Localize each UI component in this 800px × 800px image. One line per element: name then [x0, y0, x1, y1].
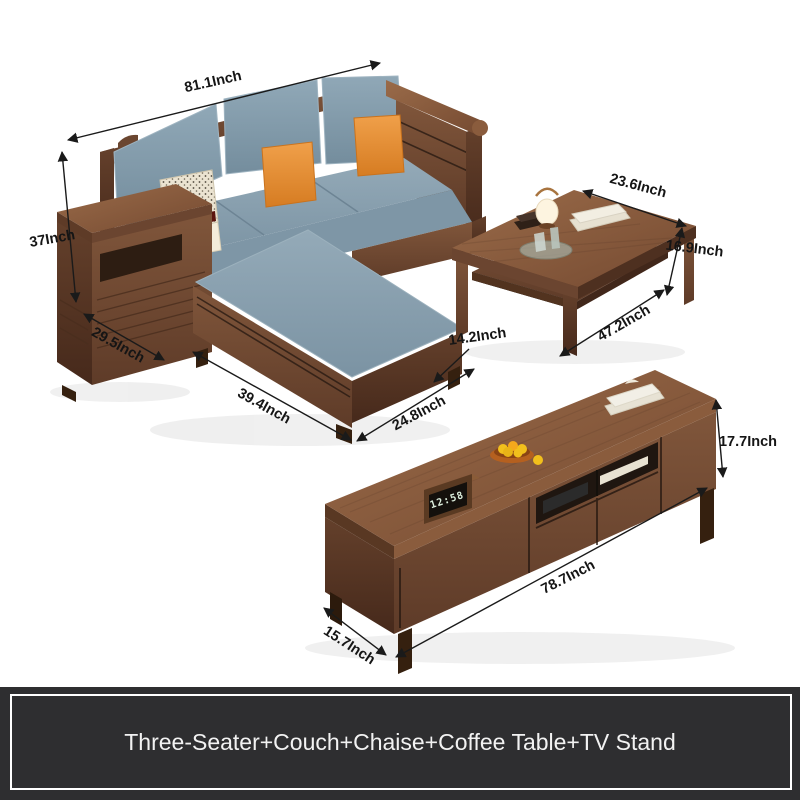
dim-label-table-length: 47.2Inch	[595, 302, 653, 345]
glass-cup	[534, 232, 546, 252]
banner-caption: Three-Seater+Couch+Chaise+Coffee Table+T…	[124, 729, 676, 755]
loose-fruit	[533, 455, 543, 465]
dim-label-tvstand-height: 17.7Inch	[719, 434, 777, 450]
product-image: 12:58 81.1Inch 37Inch	[0, 0, 800, 800]
orange-pillow	[262, 142, 316, 207]
orange-pillow	[354, 115, 404, 176]
dim-label-table-height: 16.9Inch	[665, 238, 725, 261]
tvstand-leg	[700, 488, 714, 544]
sofa-left-storage-arm	[57, 184, 212, 402]
dim-label-sofa-width: 81.1Inch	[183, 68, 243, 96]
armrest-rounded-cap	[472, 120, 488, 136]
caption-banner: Three-Seater+Couch+Chaise+Coffee Table+T…	[0, 687, 800, 800]
tvstand-leg	[398, 628, 412, 674]
tv-stand: 12:58	[325, 370, 716, 674]
furniture-dimension-diagram: 12:58 81.1Inch 37Inch	[0, 0, 800, 800]
dim-label-table-depth: 23.6Inch	[608, 171, 668, 201]
